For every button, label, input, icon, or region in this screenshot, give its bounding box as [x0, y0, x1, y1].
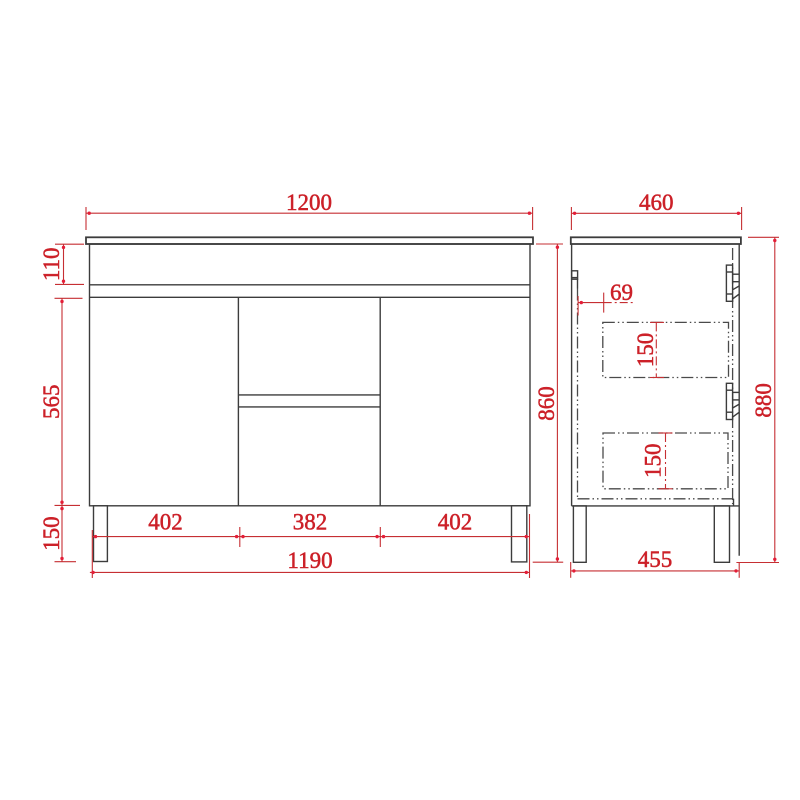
svg-text:455: 455 — [638, 547, 673, 572]
svg-text:150: 150 — [633, 333, 658, 368]
svg-text:382: 382 — [293, 510, 328, 535]
svg-text:860: 860 — [534, 386, 559, 421]
svg-text:460: 460 — [639, 190, 674, 215]
svg-text:402: 402 — [438, 510, 473, 535]
svg-text:110: 110 — [39, 247, 64, 281]
svg-text:1190: 1190 — [287, 548, 332, 573]
svg-text:880: 880 — [751, 383, 776, 418]
svg-text:69: 69 — [610, 280, 633, 305]
svg-text:402: 402 — [148, 510, 183, 535]
svg-text:565: 565 — [39, 385, 64, 420]
svg-text:150: 150 — [39, 516, 64, 551]
svg-text:150: 150 — [641, 443, 666, 478]
svg-text:1200: 1200 — [286, 190, 332, 215]
